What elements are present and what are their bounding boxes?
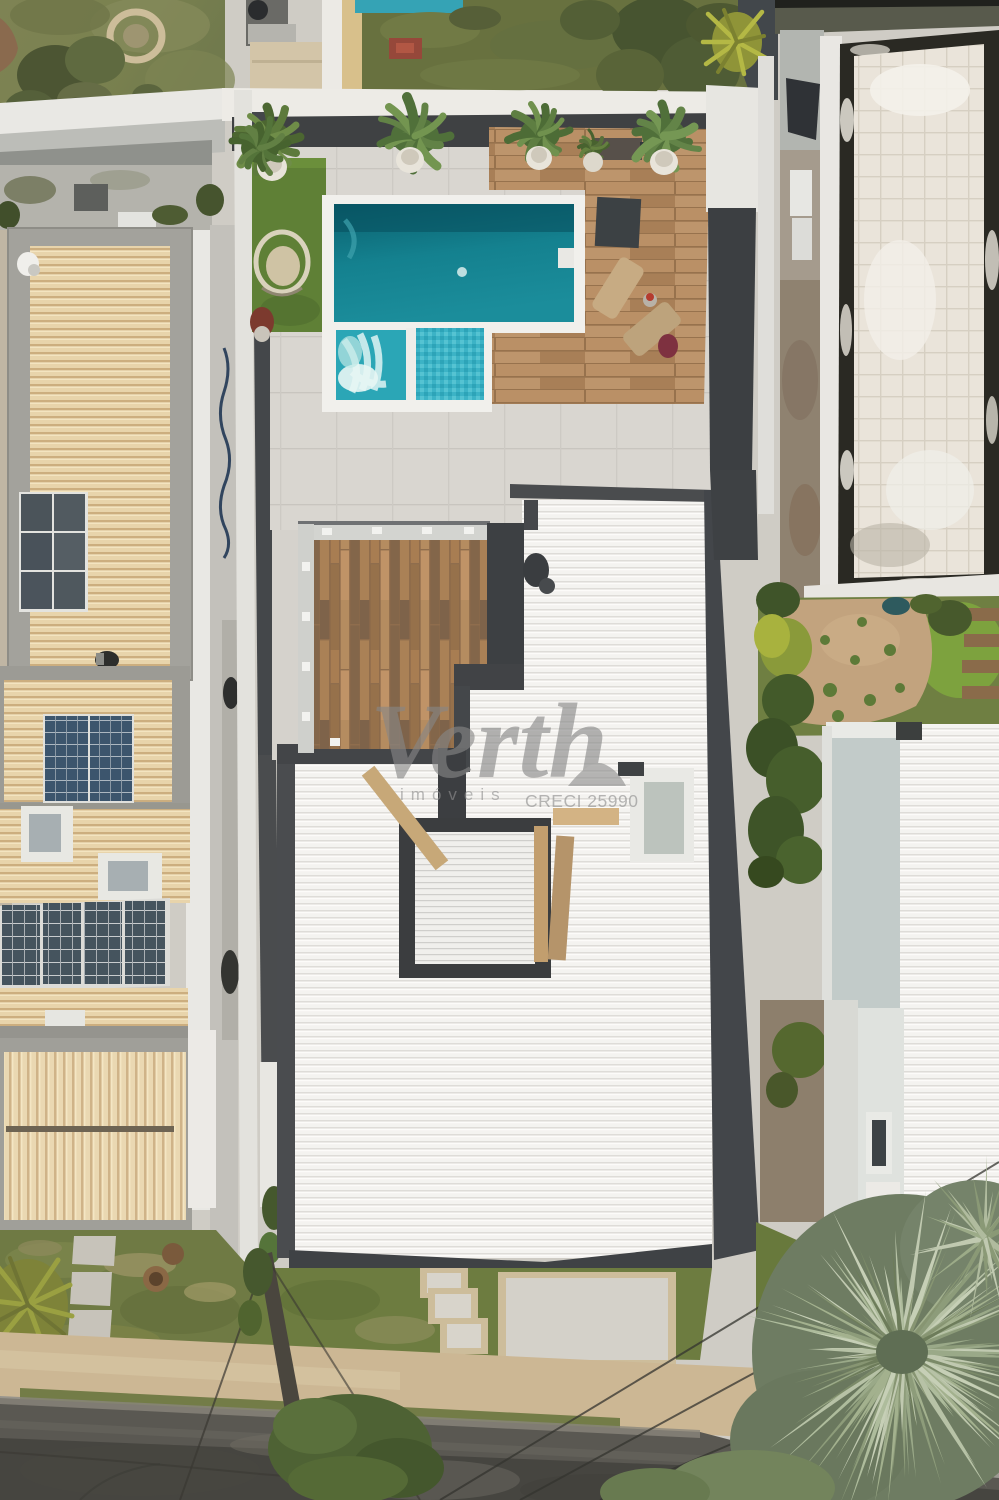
svg-text:CRECI 25990: CRECI 25990 xyxy=(525,791,638,811)
svg-text:imóveis: imóveis xyxy=(400,785,507,804)
